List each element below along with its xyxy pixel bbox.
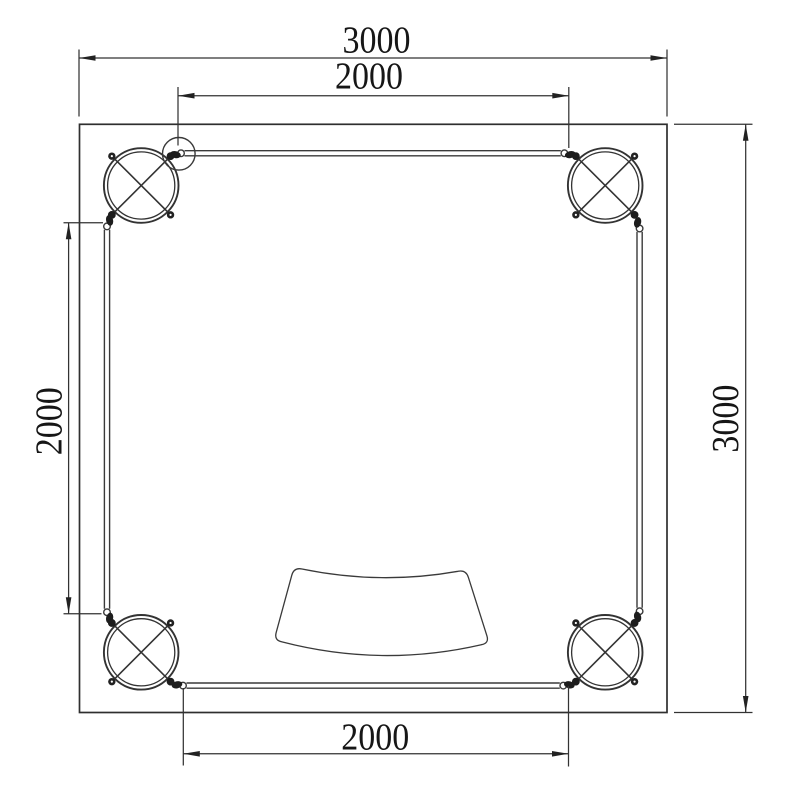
svg-text:2000: 2000 — [28, 387, 70, 455]
svg-text:2000: 2000 — [341, 717, 409, 759]
svg-text:2000: 2000 — [335, 56, 403, 98]
svg-text:3000: 3000 — [705, 385, 747, 453]
